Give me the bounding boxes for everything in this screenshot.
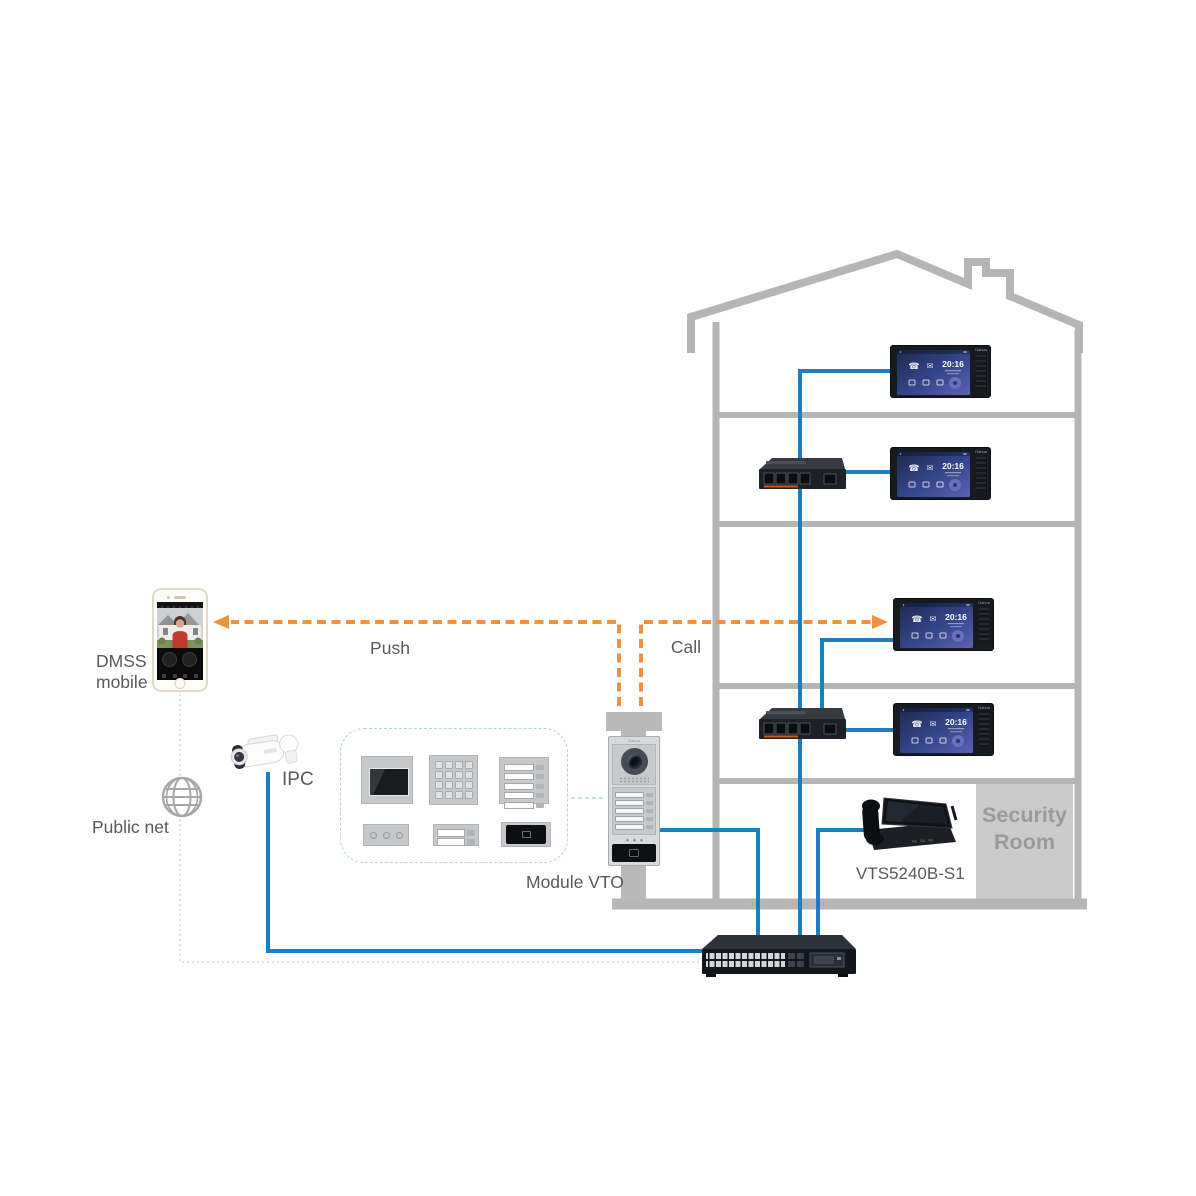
vts-master-station [858, 790, 962, 854]
caller-person [173, 631, 188, 648]
video-call-preview [157, 608, 203, 648]
uplink-port [824, 724, 836, 734]
monitor-screen: ☎ ✉ 20:16 [900, 603, 973, 648]
vto-camera-module [612, 744, 656, 785]
vto-call-buttons [612, 787, 656, 835]
topology-diagram: Push Call IPC DMSS mobile Public net Mod… [0, 0, 1196, 1196]
speaker-grille [979, 608, 989, 642]
home-button [175, 678, 186, 689]
floor-switch [752, 705, 848, 745]
dmss-label-line2: mobile [96, 672, 148, 693]
ethernet-port [776, 723, 786, 734]
indoor-monitor: Dahua ☎ ✉ 20:16 [890, 345, 991, 398]
security-room-label: Security Room [976, 802, 1073, 856]
speaker-grille [976, 457, 986, 491]
module-vto-device: Dahua [608, 736, 660, 866]
monitor-screen: ☎ ✉ 20:16 [900, 708, 973, 753]
call-icon: ☎ [908, 463, 919, 473]
indoor-monitor: Dahua ☎ ✉ 20:16 [890, 447, 991, 500]
vto-indicator [624, 837, 645, 843]
monitor-time: 20:16 [942, 461, 964, 471]
cable-vto-switch [659, 830, 758, 941]
ethernet-port [800, 723, 810, 734]
push-arrowhead [213, 615, 229, 629]
vts-model-label: VTS5240B-S1 [856, 864, 964, 884]
ethernet-port [788, 723, 798, 734]
dmss-phone [152, 588, 208, 692]
vto-camera-lens [621, 748, 648, 775]
dmss-mobile-label: DMSS mobile [96, 651, 148, 693]
public-net-label: Public net [92, 817, 169, 838]
keypad-module [429, 755, 478, 805]
signal-flows [213, 615, 888, 706]
indoor-monitor: Dahua ☎ ✉ 20:16 [893, 703, 994, 756]
speaker-grille [979, 713, 989, 747]
brand-logo: Dahua [975, 449, 987, 454]
vto-card-reader [612, 844, 656, 862]
call-arrowhead [872, 615, 888, 629]
orange-accent [764, 486, 798, 488]
push-label: Push [355, 638, 425, 659]
security-label-line1: Security [976, 802, 1073, 829]
ethernet-port [764, 723, 774, 734]
call-controls [157, 648, 203, 680]
push-flow-line [231, 622, 619, 706]
brand-logo: Dahua [978, 705, 990, 710]
ipc-label: IPC [282, 769, 314, 791]
roof [691, 254, 1079, 353]
indoor-monitor: Dahua ☎ ✉ 20:16 [893, 598, 994, 651]
call-icon: ☎ [911, 614, 922, 624]
button-module [499, 757, 549, 804]
call-icon: ☎ [911, 719, 922, 729]
call-flow-line [641, 622, 872, 706]
phone-earpiece [174, 596, 186, 599]
hangup-button [182, 652, 197, 667]
screen-module [361, 756, 413, 804]
vto-module-options-box [340, 728, 568, 863]
dmss-label-line1: DMSS [96, 651, 148, 672]
module-vto-label: Module VTO [526, 872, 624, 893]
card-reader-module [501, 822, 551, 847]
monitor-screen: ☎ ✉ 20:16 [897, 350, 970, 395]
answer-button [162, 652, 177, 667]
phone-screen [157, 602, 203, 680]
phone-front-camera [167, 596, 170, 599]
ethernet-port [788, 473, 798, 484]
call-icon: ☎ [908, 361, 919, 371]
switch-top [702, 935, 856, 949]
brand-logo: Dahua [978, 600, 990, 605]
message-icon: ✉ [927, 362, 934, 371]
speaker-grille [976, 355, 986, 389]
monitor-time: 20:16 [945, 612, 967, 622]
indicator-module [363, 824, 409, 846]
port-block [706, 952, 785, 968]
ethernet-port [776, 473, 786, 484]
call-label: Call [660, 637, 712, 658]
screen-module-display [369, 768, 409, 796]
vto-speaker-holes [619, 777, 649, 783]
uplink-port [824, 474, 836, 484]
poe-switch [696, 928, 860, 980]
globe-icon [159, 774, 205, 820]
monitor-screen: ☎ ✉ 20:16 [897, 452, 970, 497]
brand-logo: Dahua [975, 347, 987, 352]
ethernet-port [764, 473, 774, 484]
monitor-time: 20:16 [945, 717, 967, 727]
vts-antenna [952, 806, 956, 820]
message-icon: ✉ [927, 464, 934, 473]
orange-accent [764, 736, 798, 738]
security-label-line2: Room [976, 829, 1073, 856]
two-button-module [433, 824, 479, 846]
message-icon: ✉ [930, 615, 937, 624]
message-icon: ✉ [930, 720, 937, 729]
ethernet-port [800, 473, 810, 484]
monitor-time: 20:16 [942, 359, 964, 369]
floor-switch [752, 455, 848, 495]
